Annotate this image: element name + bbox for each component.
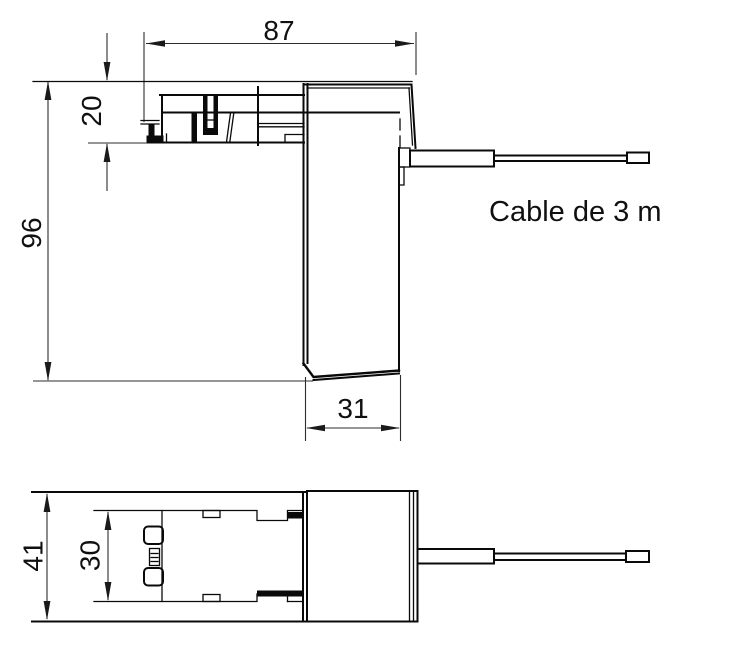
arrowhead-right-icon [381, 425, 400, 432]
dim-clip-height: 20 [76, 33, 150, 191]
u-channel-bottom [203, 128, 218, 135]
arrowhead-up-icon [105, 511, 112, 530]
rail-notch [203, 595, 220, 602]
clip-pad [144, 527, 163, 545]
dim-label-41: 41 [17, 540, 48, 571]
side-view: 87 20 96 31 [16, 15, 662, 441]
cable-connector [410, 151, 494, 167]
arrowhead-down-icon [105, 582, 112, 601]
cable-gland [399, 148, 410, 167]
arrowhead-left-icon [146, 40, 165, 47]
cable-tip [627, 153, 649, 164]
dim-label-30: 30 [74, 540, 105, 571]
cable-length-label: Cable de 3 m [489, 196, 662, 228]
dim-label-31: 31 [337, 393, 368, 424]
body-outline [307, 491, 418, 622]
arrowhead-down-icon [44, 601, 51, 620]
dim-label-96: 96 [16, 217, 47, 248]
device-body-plan [307, 491, 418, 622]
clip-pad [144, 568, 163, 586]
dim-overall-depth: 41 [17, 493, 50, 620]
rail-clip-bar [288, 512, 303, 519]
rail-clip-bar [257, 591, 303, 597]
device-body-profile [304, 84, 416, 380]
rail-notch [203, 511, 220, 518]
cable-tip [626, 551, 649, 562]
arrowhead-down-icon [45, 362, 52, 381]
arrowhead-left-icon [306, 425, 325, 432]
dim-overall-width: 87 [144, 15, 416, 122]
clip-rib [192, 113, 198, 143]
cable-connector [418, 549, 495, 564]
arrowhead-down-icon [104, 62, 111, 81]
rail-inner-bottom [94, 594, 257, 602]
arrowhead-up-icon [44, 493, 51, 512]
dim-inner-depth: 30 [74, 511, 111, 601]
plan-view: 41 30 [17, 491, 649, 622]
rail-outline [32, 492, 307, 622]
dim-overall-height: 96 [16, 81, 313, 381]
cable-assembly-plan [418, 549, 650, 564]
technical-drawing: 87 20 96 31 [0, 0, 752, 650]
din-clip-profile [141, 87, 399, 145]
rail-inner-top [94, 511, 303, 521]
clip-foot [149, 124, 155, 137]
clip-features-plan [144, 511, 163, 602]
clip-foot [147, 136, 164, 143]
arrowhead-right-icon [395, 40, 414, 47]
dim-label-20: 20 [76, 95, 107, 126]
dim-label-87: 87 [263, 15, 294, 46]
drawing-canvas: 87 20 96 31 [0, 0, 752, 650]
cable-assembly-side [399, 148, 649, 185]
dim-body-width: 31 [306, 375, 401, 441]
arrowhead-up-icon [104, 143, 111, 162]
arrowhead-up-icon [45, 81, 52, 100]
